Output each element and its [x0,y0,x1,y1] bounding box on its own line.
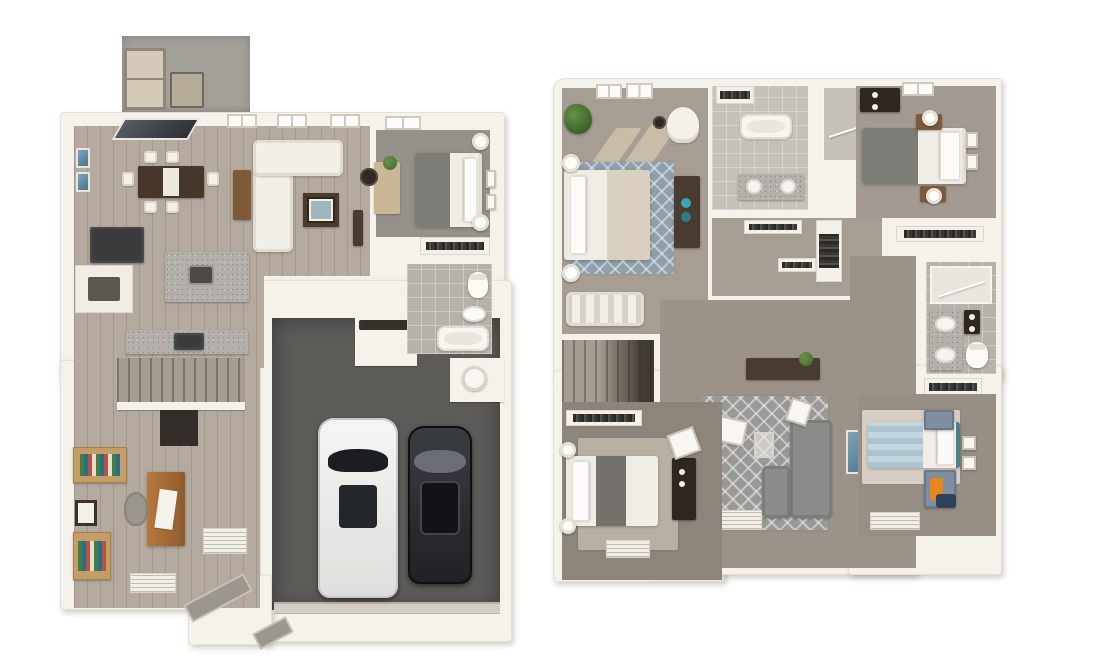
bedroom2-wall-art-b [966,154,978,170]
dining-chair-3 [144,201,157,213]
sectional-sofa-top [253,140,343,176]
fridge [90,227,144,263]
master-skylight-b [626,83,653,99]
suv-white [318,418,398,598]
first-floor-plan [60,30,515,645]
dining-chair-2 [166,151,179,163]
sedan-black [408,426,472,584]
second-floor-plan [550,70,1002,585]
bedroom1-wall-art-a [486,170,496,188]
water-heater [462,366,487,391]
walkin-clothes-right [816,220,842,282]
bedroom2-closet-clothes [896,226,984,242]
coffee-table [303,193,339,227]
bedroom4-dresser [924,410,954,430]
master-armchair [667,107,699,143]
walkin-clothes-top [744,220,802,234]
upper-staircase [562,340,654,402]
bedroom3-bed [566,456,658,526]
bedroom2-wall-art-a [966,132,978,148]
master-lamp-bottom [562,264,580,282]
dining-wall-art-b [76,172,90,192]
bedroom4-wall-art-a [962,436,976,450]
loft-floor-vent [716,510,762,530]
bath2-vanity [930,310,962,370]
garage-door [274,602,500,614]
cooktop [174,333,204,350]
dining-chair-5 [122,172,134,186]
master-skylight-a [596,84,622,99]
bedroom2-window [902,82,934,96]
bath1-toilet [468,272,488,298]
staircase [117,358,245,402]
bedroom3-lamp-top [560,442,576,458]
office-shelf-b [73,532,111,580]
bath2-toilet [966,342,988,368]
master-bed [564,170,650,260]
master-plant [564,104,592,134]
bedroom4-floor-vent [870,512,920,530]
bedroom2-bed [862,128,966,184]
bath1-sink [462,306,486,322]
bath2-shower [930,266,992,304]
hall-floor-vent [203,528,247,554]
loft-console [746,358,820,380]
stair-void [160,410,198,446]
office-chair [124,492,148,526]
bedroom2-lamp-top [922,110,938,126]
bath1-tub [437,326,489,351]
patio-slider-window [112,118,201,140]
hall-carpet [850,256,916,304]
dining-chair-1 [144,151,157,163]
dining-chair-6 [207,172,219,186]
bedroom4-chair [936,494,956,508]
master-bath-tub [740,114,792,139]
bookshelf [233,170,251,220]
master-sofa [566,292,644,326]
kitchen-island [165,252,249,302]
dining-table [138,166,204,198]
bedroom4-wall-art-b [962,456,976,470]
bedroom3-dresser [672,458,696,520]
bedroom1-dresser [374,162,400,214]
bedroom3-floor-vent [606,540,650,558]
bedroom2-lamp-bottom [926,188,942,204]
bedroom1-wall-mirror [360,168,378,186]
walkin-clothes-bottom [778,258,816,272]
mudroom-bench [359,320,413,330]
bedroom1-lamp-bottom [472,214,489,231]
patio-table [170,72,204,108]
master-side-table [653,116,666,129]
floorplan-canvas [0,0,1105,666]
master-bath-closet-rod [716,86,754,104]
master-tv-stand [674,176,700,248]
window-living-1 [227,114,257,128]
bedroom2-dresser [860,88,900,112]
master-bath-vanity [738,174,804,200]
loft-glass-table [754,432,774,458]
bedroom1-wall-art-b [486,194,496,210]
bedroom3-closet-clothes [566,410,642,426]
media-console [353,210,363,246]
window-bedroom1 [385,116,421,130]
window-living-2 [277,114,307,128]
office-shelf-a [73,447,127,483]
loft-sectional-chaise [762,466,790,518]
stair-rail [117,402,245,410]
window-living-3 [330,114,360,128]
bedroom3-lamp-bottom [560,518,576,534]
office-floor-vent [130,573,176,593]
wall-oven-cabinet [75,265,133,313]
office-desk [147,472,185,546]
bedroom1-closet-clothes [420,237,490,255]
dining-wall-art-a [76,148,90,168]
bedroom1-lamp-top [472,133,489,150]
dining-chair-4 [166,201,179,213]
patio-sofa [124,48,166,110]
office-art [75,500,97,526]
bedroom1-bed [415,153,482,227]
bath2-shelf [964,310,980,334]
master-lamp-top [562,154,580,172]
loft-sectional-main [790,420,832,518]
